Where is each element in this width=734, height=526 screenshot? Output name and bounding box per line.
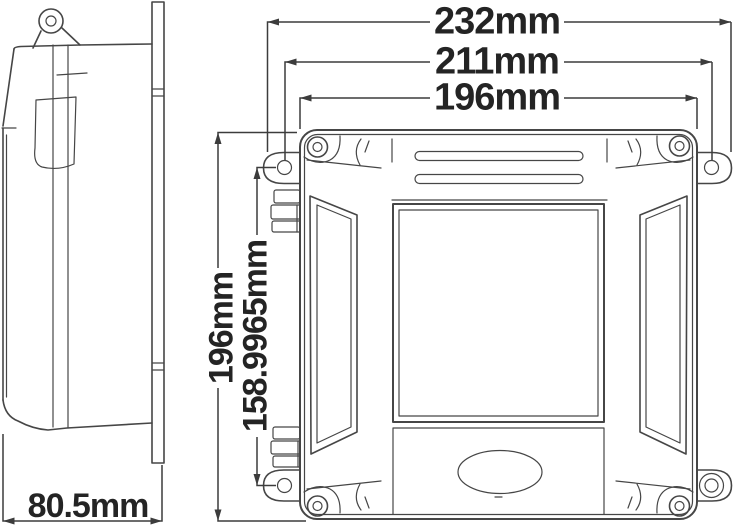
dimension-80: 80.5mm [3,434,162,525]
side-body-bottom-edge [3,400,152,430]
mounting-hole-bottom-left [278,479,292,493]
front-view [264,130,732,519]
side-bezel-tick [57,73,87,75]
mounting-hole-bottom-right [705,479,718,492]
dimension-196-width: 196mm [300,77,697,130]
dim-label-depth: 80.5mm [28,487,149,525]
side-flange-plate [152,2,164,463]
mounting-ear-bottom-right [695,470,732,501]
cable-glands-top [271,190,303,232]
side-front-slope [3,49,14,126]
drawing-canvas: 232mm 211mm 196mm 196mm 158.9965mm 80.5m… [0,0,734,526]
side-flange-ticks [152,89,164,370]
mounting-ear-top-right [695,153,732,184]
dim-label-overall-width: 232mm [434,1,560,43]
side-bezel-panel [35,97,76,168]
dimension-drawing: 232mm 211mm 196mm 196mm 158.9965mm 80.5m… [0,0,734,526]
side-hanger-ear [39,9,63,33]
mounting-hole-top-left [278,161,292,175]
dim-label-body-height: 196mm [203,272,241,384]
dim-label-body-width: 196mm [434,77,560,119]
mounting-hole-ring-bottom-right [700,474,724,498]
dim-label-hole-spacing-height: 158.9965mm [237,240,275,432]
enclosure-body [300,130,697,519]
side-view [2,2,164,463]
dimension-158: 158.9965mm [237,168,277,486]
side-hanger-hole [46,16,56,26]
mounting-hole-top-right [705,161,719,175]
